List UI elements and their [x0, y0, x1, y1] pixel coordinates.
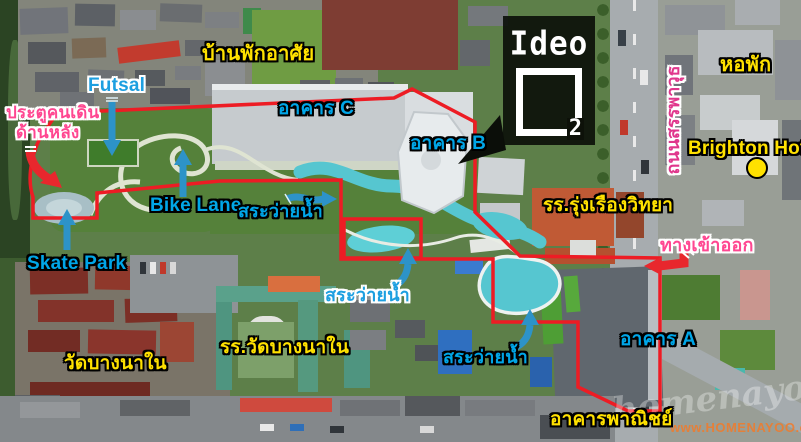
- label-futsal: Futsal: [88, 76, 145, 96]
- label-rungrueang-school: รร.รุ่งเรืองวิทยา: [543, 196, 673, 216]
- label-back-gate-line1: ประตูคนเดิน: [6, 104, 99, 122]
- label-wat-school: รร.วัดบางนาใน: [220, 338, 349, 358]
- label-building-c: อาคาร C: [278, 99, 354, 119]
- warehouse-roof: [322, 0, 458, 70]
- label-building-a: อาคาร A: [620, 330, 696, 350]
- building-c-roof: [212, 84, 408, 164]
- label-residential-area: บ้านพักอาศัย: [202, 44, 314, 65]
- label-swimming-pool-1: สระว่ายน้ำ: [238, 202, 323, 221]
- o2-subscript: 2: [567, 118, 584, 140]
- label-entrance-exit: ทางเข้าออก: [660, 236, 754, 255]
- label-swimming-pool-2: สระว่ายน้ำ: [325, 286, 410, 305]
- label-brighton-hotel: Brighton Hotel: [688, 139, 801, 159]
- watermark-url: www.HOMENAYOO.com: [670, 420, 801, 435]
- label-commercial-buildings: อาคารพาณิชย์: [550, 410, 673, 430]
- label-skate-park: Skate Park: [27, 254, 126, 274]
- o2-square-logo: 2: [516, 68, 582, 136]
- brighton-hotel-marker: [746, 157, 768, 179]
- label-back-gate-line2: ด้านหลัง: [16, 124, 79, 142]
- ideo-o2-logo: Ideo 2: [503, 16, 595, 145]
- label-building-b: อาคาร B: [410, 134, 486, 154]
- label-swimming-pool-3: สระว่ายน้ำ: [443, 348, 528, 367]
- label-bike-lane: Bike Lane: [150, 196, 242, 216]
- label-wat-bang-na-nai: วัดบางนาใน: [64, 354, 167, 374]
- ideo-brand-text: Ideo: [503, 25, 595, 63]
- label-sanphawut-road: ถนนสรรพาวุธ: [658, 50, 678, 190]
- label-dormitory: หอพัก: [720, 55, 771, 76]
- aerial-map: Ideo 2 บ้านพักอาศัย Futsal ประตูคนเดิน ด…: [0, 0, 801, 442]
